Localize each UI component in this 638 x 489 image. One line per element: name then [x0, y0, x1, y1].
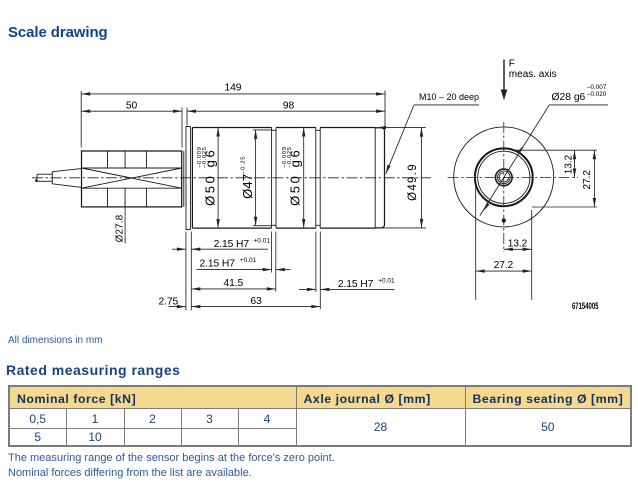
svg-text:13.2: 13.2	[508, 238, 528, 249]
svg-text:–0.25: –0.25	[240, 156, 246, 174]
svg-text:+0.01: +0.01	[378, 278, 395, 285]
svg-text:Ø27.8: Ø27.8	[114, 214, 125, 242]
svg-text:–0.025: –0.025	[202, 146, 208, 167]
svg-text:F: F	[509, 58, 515, 69]
svg-text:M10 – 20 deep: M10 – 20 deep	[419, 92, 479, 102]
svg-text:Ø28 g6: Ø28 g6	[552, 92, 586, 103]
svg-text:98: 98	[283, 101, 295, 112]
svg-text:Ø47: Ø47	[240, 174, 255, 199]
svg-text:–0.025: –0.025	[287, 146, 293, 167]
svg-text:2.15 H7: 2.15 H7	[338, 279, 374, 290]
svg-text:+0.01: +0.01	[254, 238, 271, 245]
svg-text:2.75: 2.75	[159, 296, 179, 307]
svg-text:2.15 H7: 2.15 H7	[214, 239, 250, 250]
svg-text:149: 149	[225, 83, 242, 94]
svg-text:67154005: 67154005	[572, 301, 599, 311]
svg-text:Ø49.9: Ø49.9	[407, 163, 419, 201]
svg-text:+0.01: +0.01	[240, 257, 257, 264]
svg-text:meas. axis: meas. axis	[509, 69, 557, 80]
svg-text:2.15 H7: 2.15 H7	[200, 258, 236, 269]
svg-text:27.2: 27.2	[494, 260, 514, 271]
svg-text:50: 50	[126, 101, 138, 112]
svg-text:27.2: 27.2	[582, 170, 593, 190]
svg-text:41.5: 41.5	[223, 278, 243, 289]
svg-text:63: 63	[250, 296, 262, 307]
svg-text:–0.020: –0.020	[587, 91, 607, 98]
svg-text:13.2: 13.2	[563, 154, 574, 174]
